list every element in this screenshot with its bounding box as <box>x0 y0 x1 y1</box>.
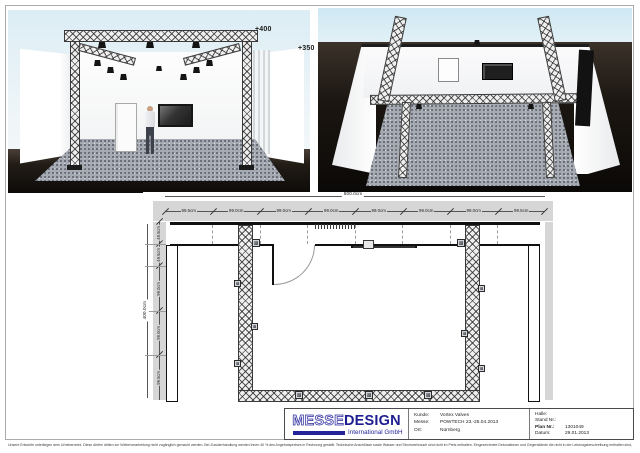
door <box>115 103 137 152</box>
dimension-segment: 99.5cm <box>498 201 546 221</box>
sky-background <box>318 8 632 44</box>
tv-screen <box>482 63 513 80</box>
dimension-total-height-label: 400.0cm <box>144 299 149 321</box>
field-kunde: Kunde: Vortex Valves <box>414 412 524 419</box>
dimension-segment: 99.0cm <box>213 201 261 221</box>
spotlight-clamp-icon <box>234 280 241 287</box>
spotlight-clamp-icon <box>457 239 465 247</box>
dimension-segment: 99.5cm <box>153 355 166 400</box>
title-block: MESSEDESIGN International GmbH Kunde: Vo… <box>284 408 634 440</box>
spotlight-icon <box>206 60 213 66</box>
plan-left-wall-panel <box>166 245 178 402</box>
extension-line <box>497 225 498 244</box>
field-ort: Ort: Nürnberg <box>414 427 524 434</box>
dimension-total-width: 800.0cm <box>153 192 553 200</box>
render-birdseye-view <box>318 8 632 192</box>
spotlight-icon <box>94 60 101 66</box>
plan-truss-tower-right <box>465 225 480 402</box>
plan-tv <box>351 246 417 248</box>
logo-bar <box>293 431 345 435</box>
extension-line <box>145 355 166 356</box>
field-datum: Datum: 29.01.2013 <box>535 431 628 437</box>
person-legs <box>146 127 154 154</box>
dimension-segment: 99.0cm <box>403 201 451 221</box>
spotlight-icon <box>107 67 114 73</box>
plan-truss-bottom <box>238 390 480 402</box>
dimension-chain-top: 99.5cm 99.0cm 99.0cm 99.0cm 99.0cm 99.0c… <box>165 201 545 221</box>
spotlight-clamp-icon <box>234 360 241 367</box>
field-value: Vortex Valves <box>440 412 469 419</box>
extension-line <box>145 244 166 245</box>
spotlight-icon <box>180 74 187 80</box>
spotlight-clamp-icon <box>461 330 468 337</box>
spotlight-clamp-icon <box>252 239 260 247</box>
wall-hatch-strip <box>315 224 355 229</box>
height-label-wall: +350 <box>298 45 315 52</box>
spotlight-icon <box>416 104 422 109</box>
right-wall-slats <box>253 50 270 154</box>
title-block-fields-right: Halle: Stand Nr.: Plan Nr.: 1301049 Datu… <box>529 409 633 439</box>
logo-subtitle: International GmbH <box>348 429 403 436</box>
dimension-segment: 99.0cm <box>153 311 166 355</box>
spotlight-icon <box>193 67 200 73</box>
spotlight-icon <box>120 74 127 80</box>
spotlight-clamp-icon <box>365 391 373 399</box>
extension-line <box>307 225 308 244</box>
extension-line <box>260 225 261 244</box>
plan-right-wall-panel <box>528 245 540 402</box>
dimension-band-top: 99.5cm 99.0cm 99.0cm 99.0cm 99.0cm 99.0c… <box>153 201 553 221</box>
extension-line <box>355 225 356 244</box>
truss-base-right <box>239 165 254 170</box>
dimension-segment: 99.5cm <box>165 201 213 221</box>
field-label: Ort: <box>414 427 440 434</box>
field-label: Kunde: <box>414 412 440 419</box>
truss-column-right <box>242 30 252 168</box>
spotlight-clamp-icon <box>295 391 303 399</box>
dimension-segment: 99.0cm <box>308 201 356 221</box>
spotlight-icon <box>98 42 106 48</box>
spotlight-clamp-icon <box>478 285 485 292</box>
spotlight-clamp-icon <box>251 323 258 330</box>
spotlight-icon <box>146 42 154 48</box>
legal-disclaimer: Unsere Entwürfe unterliegen dem Urheberr… <box>8 443 632 447</box>
field-value: Nürnberg <box>440 427 460 434</box>
extension-line <box>450 225 451 244</box>
plan-back-wall <box>170 222 540 225</box>
spotlight-icon <box>474 40 480 45</box>
door <box>438 58 459 82</box>
height-label-truss: +400 <box>255 26 272 33</box>
dimension-band-right <box>545 222 553 400</box>
spotlight-icon <box>192 42 200 48</box>
door-swing-arc <box>274 245 315 285</box>
plan-truss-tower-left <box>238 225 253 402</box>
left-wall <box>20 44 76 166</box>
spotlight-clamp-icon <box>478 365 485 372</box>
truss-beam-top <box>64 30 258 42</box>
dimension-segment: 49.5cm <box>153 244 166 266</box>
logo-subtitle-row: International GmbH <box>285 429 408 436</box>
render-front-view <box>8 10 310 193</box>
extension-line <box>145 266 166 267</box>
title-block-fields: Kunde: Vortex Valves Messe: POWTECH 23.-… <box>409 409 529 439</box>
field-label: Messe: <box>414 419 440 426</box>
field-value: 29.01.2013 <box>565 431 589 437</box>
person-torso <box>145 111 155 128</box>
dimension-total-width-label: 800.0cm <box>342 193 364 198</box>
tv-screen <box>158 104 193 127</box>
extension-line <box>212 225 213 244</box>
extension-line <box>402 225 403 244</box>
plan-tv-mount <box>363 240 374 249</box>
field-label: Datum: <box>535 431 565 437</box>
logo-part-messe: MESSE <box>292 413 344 429</box>
dimension-segment: 99.0cm <box>153 266 166 311</box>
spotlight-clamp-icon <box>424 391 432 399</box>
field-value: POWTECH 23.-25.04.2013 <box>440 419 498 426</box>
spotlight-icon <box>528 104 534 109</box>
spotlight-icon <box>156 66 162 71</box>
dimension-segment: 99.0cm <box>260 201 308 221</box>
dimension-segment: 99.0cm <box>355 201 403 221</box>
logo-part-design: DESIGN <box>344 413 401 429</box>
truss-base-left <box>67 165 82 170</box>
company-logo: MESSEDESIGN International GmbH <box>285 409 409 439</box>
logo-wordmark: MESSEDESIGN <box>285 412 408 430</box>
person <box>142 106 158 158</box>
dimension-segment: 49.5cm <box>153 222 166 244</box>
plan-inner-wall-right-segment <box>315 244 540 246</box>
dimension-segment: 99.0cm <box>450 201 498 221</box>
floor-plan: 800.0cm 99.5cm 99.0cm 99.0cm 99.0cm 99.0… <box>143 192 555 408</box>
field-messe: Messe: POWTECH 23.-25.04.2013 <box>414 419 524 426</box>
drawing-sheet: +400 +350 800.0cm 99.5cm 99.0cm <box>0 0 640 453</box>
